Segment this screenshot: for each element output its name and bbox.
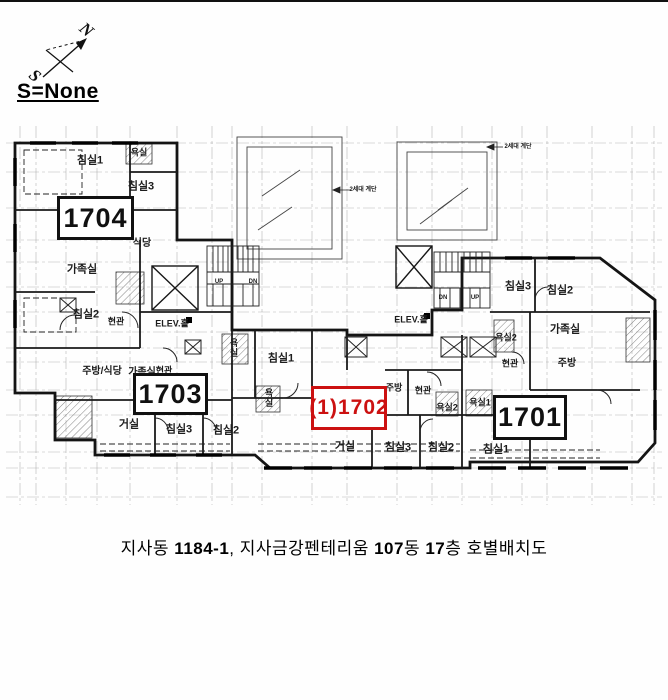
- room-label-1701: 욕실1: [469, 399, 491, 408]
- room-label-1702: 현관: [415, 387, 432, 396]
- unit-label-1701: 1701: [493, 395, 567, 440]
- elevator-shafts: [152, 246, 432, 310]
- room-label-1702: 침실3: [385, 443, 411, 454]
- room-label-1703: 침실3: [166, 425, 192, 436]
- room-label-core: 2세대 계단: [349, 187, 376, 193]
- room-label-1704: 현관: [108, 318, 125, 327]
- roof-void-outlines: [237, 137, 497, 259]
- stairs: [207, 246, 490, 308]
- room-label-1704: 가족실: [67, 265, 97, 276]
- room-label-1704: 욕실: [131, 149, 148, 158]
- room-label-core: DN: [249, 279, 258, 285]
- unit-label-1703: 1703: [133, 373, 208, 415]
- room-label-core: UP: [215, 279, 223, 285]
- room-label-1704: 침실3: [128, 182, 154, 193]
- room-label-core: 2세대 계단: [504, 144, 531, 150]
- room-label-1701: 주방: [558, 359, 576, 369]
- room-label-1702: 침실2: [428, 443, 454, 454]
- room-label-1701: 욕실2: [495, 334, 517, 343]
- unit-label-1704: 1704: [57, 196, 134, 240]
- room-label-core: UP: [471, 295, 479, 301]
- floorplan-linework: [0, 0, 668, 700]
- room-label-1703: 침실2: [213, 426, 239, 437]
- room-label-1702: 욕실: [264, 388, 273, 408]
- unit-label-1702: (1)1702: [311, 386, 387, 430]
- room-label-1703: 거실: [119, 420, 139, 431]
- room-label-core: DN: [439, 295, 448, 301]
- room-label-1701: 침실1: [483, 445, 509, 456]
- room-label-core: ELEV.홀: [394, 316, 427, 325]
- room-label-1702: 욕실2: [436, 404, 458, 413]
- room-label-1703: 주방/식당: [82, 367, 122, 377]
- room-label-1702: 주방: [386, 384, 403, 393]
- room-label-core: ELEV.홀: [155, 320, 188, 329]
- leader-arrows: [333, 144, 503, 193]
- room-label-1702: 거실: [335, 442, 355, 453]
- page: N S S=None: [0, 0, 668, 700]
- room-label-1704: 침실1: [77, 156, 103, 167]
- room-label-1702: 침실1: [268, 354, 294, 365]
- room-label-1701: 가족실: [550, 325, 580, 336]
- room-label-1701: 침실3: [505, 282, 531, 293]
- room-label-1704: 침실2: [73, 310, 99, 321]
- room-label-1701: 현관: [502, 360, 519, 369]
- room-label-1701: 침실2: [547, 286, 573, 297]
- caption-title: 지사동 1184-1, 지사금강펜테리움 107동 17층 호별배치도: [0, 534, 668, 559]
- floor-plan: 침실1욕실침실3식당가족실침실2현관주방/식당가족실현관거실침실3침실2욕실침실…: [0, 0, 668, 700]
- room-label-1702: 욕실: [229, 338, 238, 358]
- room-label-1704: 식당: [133, 239, 151, 249]
